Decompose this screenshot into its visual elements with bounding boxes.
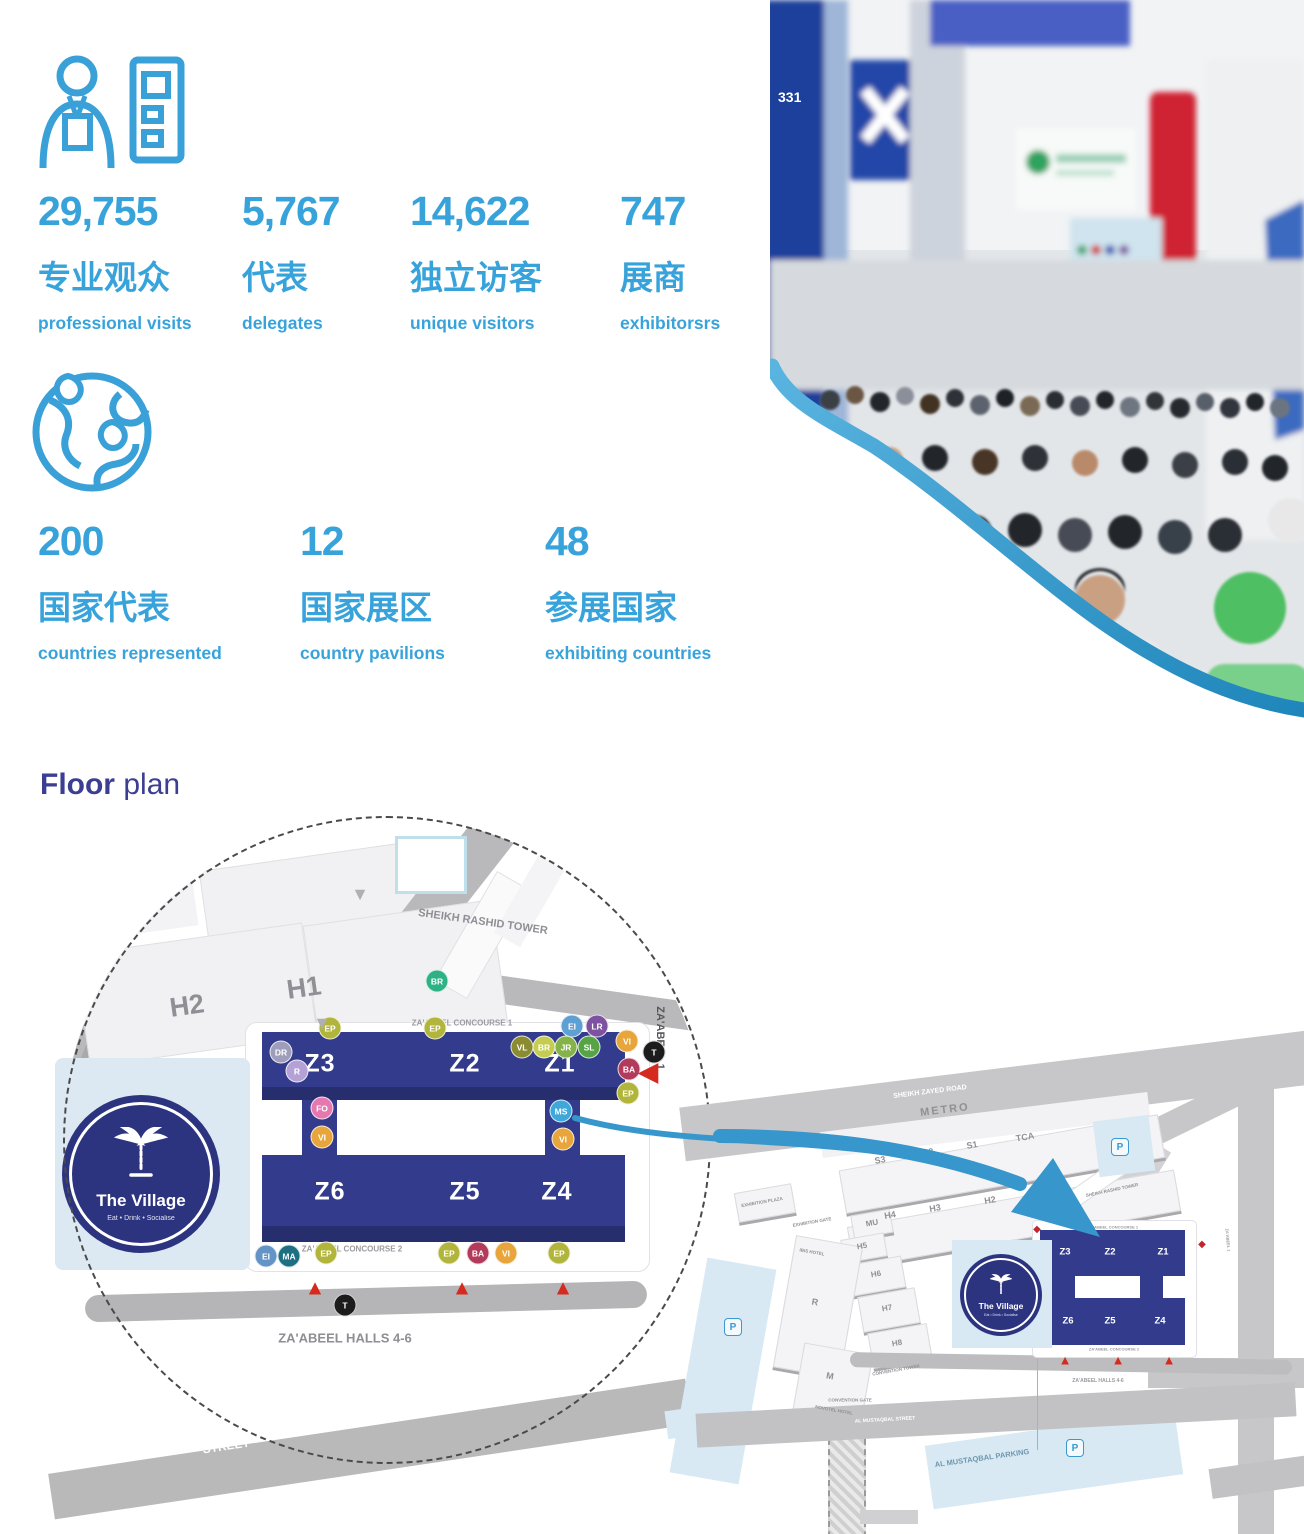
stat-item: 747展商exhibitorsrs: [620, 188, 720, 334]
mini-village-badge: The Village Eat • Drink • Socialise: [960, 1254, 1042, 1336]
hall-label-h1: H1: [285, 970, 323, 1006]
overview-label: H2: [983, 1194, 996, 1206]
walkway-stub: [860, 1510, 918, 1524]
badge-dr: DR: [270, 1041, 293, 1064]
stat-value: 14,622: [410, 188, 542, 235]
stat-item: 5,767代表delegates: [242, 188, 340, 334]
mini-zone-z6: Z6: [1062, 1316, 1073, 1327]
badge-vl: VL: [511, 1036, 534, 1059]
overview-label: ZA'ABEEL CONCOURSE 1: [1088, 1225, 1138, 1230]
badge-lr: LR: [586, 1015, 609, 1038]
stat-item: 12国家展区country pavilions: [300, 518, 445, 664]
zone-label-z2: Z2: [449, 1050, 480, 1079]
page: 29,755专业观众professional visits5,767代表dele…: [0, 0, 1304, 1534]
map-block-cyan: [395, 836, 467, 894]
stat-item: 48参展国家exhibiting countries: [545, 518, 711, 664]
gray-arrow: ▼: [351, 885, 369, 903]
badge-fo: FO: [311, 1097, 334, 1120]
overview-label: H3: [928, 1202, 941, 1214]
badge-t: T: [334, 1294, 357, 1317]
map-block: [63, 836, 199, 946]
stat-label-en: countries represented: [38, 643, 222, 664]
badge-ba: BA: [467, 1242, 490, 1265]
badge-vi: VI: [616, 1030, 639, 1053]
red-marker: ◆: [1198, 1240, 1206, 1250]
badge-ep: EP: [438, 1242, 461, 1265]
stat-label-en: country pavilions: [300, 643, 445, 664]
mini-zone-z2: Z2: [1104, 1247, 1115, 1258]
overview-label: EXHIBITION GATE: [792, 1216, 831, 1228]
stat-item: 200国家代表countries represented: [38, 518, 222, 664]
stat-item: 14,622独立访客unique visitors: [410, 188, 542, 334]
village-ring: [69, 1102, 213, 1246]
red-arrow-mini: ▲: [1059, 1354, 1072, 1367]
mini-zone-z3: Z3: [1059, 1247, 1070, 1258]
floorplan-title-rest: plan: [123, 768, 180, 801]
badge-vi: VI: [311, 1126, 334, 1149]
stat-label-zh: 参展国家: [545, 581, 711, 629]
overview-label: H8: [891, 1338, 903, 1349]
badge-sl: SL: [578, 1036, 601, 1059]
overview-label: S2: [922, 1146, 935, 1158]
mini-connector: [1052, 1276, 1075, 1298]
overview-label: ZA'ABEEL CONCOURSE 2: [1089, 1347, 1139, 1352]
badge-ms: MS: [550, 1100, 573, 1123]
stat-value: 5,767: [242, 188, 340, 235]
stat-label-zh: 国家代表: [38, 581, 222, 629]
badge-vi: VI: [552, 1128, 575, 1151]
overview-label: H1: [1028, 1186, 1041, 1198]
floorplan-detail-map: SHEIKH RASHID TOWER H2H1 The Vi: [30, 810, 730, 1520]
zone-label-z5: Z5: [449, 1178, 480, 1207]
stat-label-en: unique visitors: [410, 313, 542, 334]
stat-item: 29,755专业观众professional visits: [38, 188, 192, 334]
red-arrow: ▲: [452, 1278, 473, 1299]
mini-zone-z5: Z5: [1104, 1316, 1115, 1327]
badge-ma: MA: [278, 1245, 301, 1268]
visitor-badge-icon: [35, 52, 195, 172]
mini-zone-z1: Z1: [1157, 1247, 1168, 1258]
badge-jr: JR: [555, 1036, 578, 1059]
stat-value: 200: [38, 518, 222, 565]
zone-label-z4: Z4: [541, 1178, 572, 1207]
gray-arrow: ▼: [313, 1014, 331, 1032]
floorplan-title-bold: Floor: [40, 768, 115, 801]
overview-label: H7: [881, 1303, 893, 1314]
stat-value: 48: [545, 518, 711, 565]
exhibition-photo: 331: [770, 0, 1304, 730]
village-badge: The Village Eat • Drink • Socialise: [62, 1095, 220, 1253]
map-label: ZA'ABEEL HALLS 4-6: [278, 1331, 412, 1346]
badge-r: R: [286, 1060, 309, 1083]
zone-label-z3: Z3: [304, 1050, 335, 1079]
badge-ep: EP: [617, 1082, 640, 1105]
overview-label: H5: [856, 1241, 868, 1252]
hall-label-h2: H2: [168, 988, 206, 1024]
badge-br: BR: [533, 1036, 556, 1059]
zone-label-z6: Z6: [314, 1178, 345, 1207]
stat-label-zh: 专业观众: [38, 251, 192, 299]
floorplan-overview-map: The Village Eat • Drink • Socialise SHEI…: [700, 1040, 1304, 1534]
stat-label-zh: 独立访客: [410, 251, 542, 299]
red-arrow: ▲: [305, 1278, 326, 1299]
stat-label-zh: 国家展区: [300, 581, 445, 629]
mini-village-ring: [964, 1258, 1038, 1332]
village-tagline: Eat • Drink • Socialise: [107, 1215, 175, 1222]
overview-label: H6: [870, 1269, 882, 1280]
badge-ep: EP: [548, 1242, 571, 1265]
stat-value: 747: [620, 188, 720, 235]
badge-br: BR: [426, 970, 449, 993]
overview-label: H4: [883, 1209, 896, 1221]
overview-label: S1: [966, 1139, 979, 1151]
red-arrow-mini: ▲: [1112, 1354, 1125, 1367]
mini-zone-z4: Z4: [1154, 1316, 1165, 1327]
overview-label: ZA'ABEEL 1: [1225, 1228, 1232, 1251]
badge-ep: EP: [315, 1242, 338, 1265]
stat-label-en: exhibiting countries: [545, 643, 711, 664]
mini-village-tagline: Eat • Drink • Socialise: [984, 1313, 1018, 1317]
overview-label: S3: [874, 1154, 887, 1166]
stat-label-en: professional visits: [38, 313, 192, 334]
stats-row-1: 29,755专业观众professional visits5,767代表dele…: [0, 188, 780, 338]
parking-icon: P: [1111, 1138, 1129, 1156]
red-marker: ◆: [1033, 1225, 1041, 1235]
mini-connector: [1140, 1276, 1163, 1298]
red-arrow: ◀: [638, 1059, 659, 1086]
globe-icon: [28, 360, 160, 496]
badge-ep: EP: [424, 1017, 447, 1040]
stat-label-zh: 代表: [242, 251, 340, 299]
stats-row-2: 200国家代表countries represented12国家展区countr…: [0, 518, 780, 668]
stat-label-zh: 展商: [620, 251, 720, 299]
overview-label: CONVENTION GATE: [828, 1398, 871, 1403]
overview-label: ZA'ABEEL HALLS 4-6: [1072, 1378, 1123, 1384]
red-arrow: ▲: [553, 1278, 574, 1299]
stat-label-en: exhibitorsrs: [620, 313, 720, 334]
floorplan-title: Floor plan: [40, 768, 180, 802]
parking-icon: P: [724, 1318, 742, 1336]
badge-vi: VI: [495, 1242, 518, 1265]
badge-ei: EI: [561, 1015, 584, 1038]
overview-label: R: [811, 1297, 819, 1308]
stat-value: 29,755: [38, 188, 192, 235]
badge-ei: EI: [255, 1245, 278, 1268]
stat-value: 12: [300, 518, 445, 565]
red-arrow-mini: ▲: [1163, 1354, 1176, 1367]
parking-icon: P: [1066, 1439, 1084, 1457]
stat-label-en: delegates: [242, 313, 340, 334]
photo-booth-number: 331: [778, 89, 802, 105]
